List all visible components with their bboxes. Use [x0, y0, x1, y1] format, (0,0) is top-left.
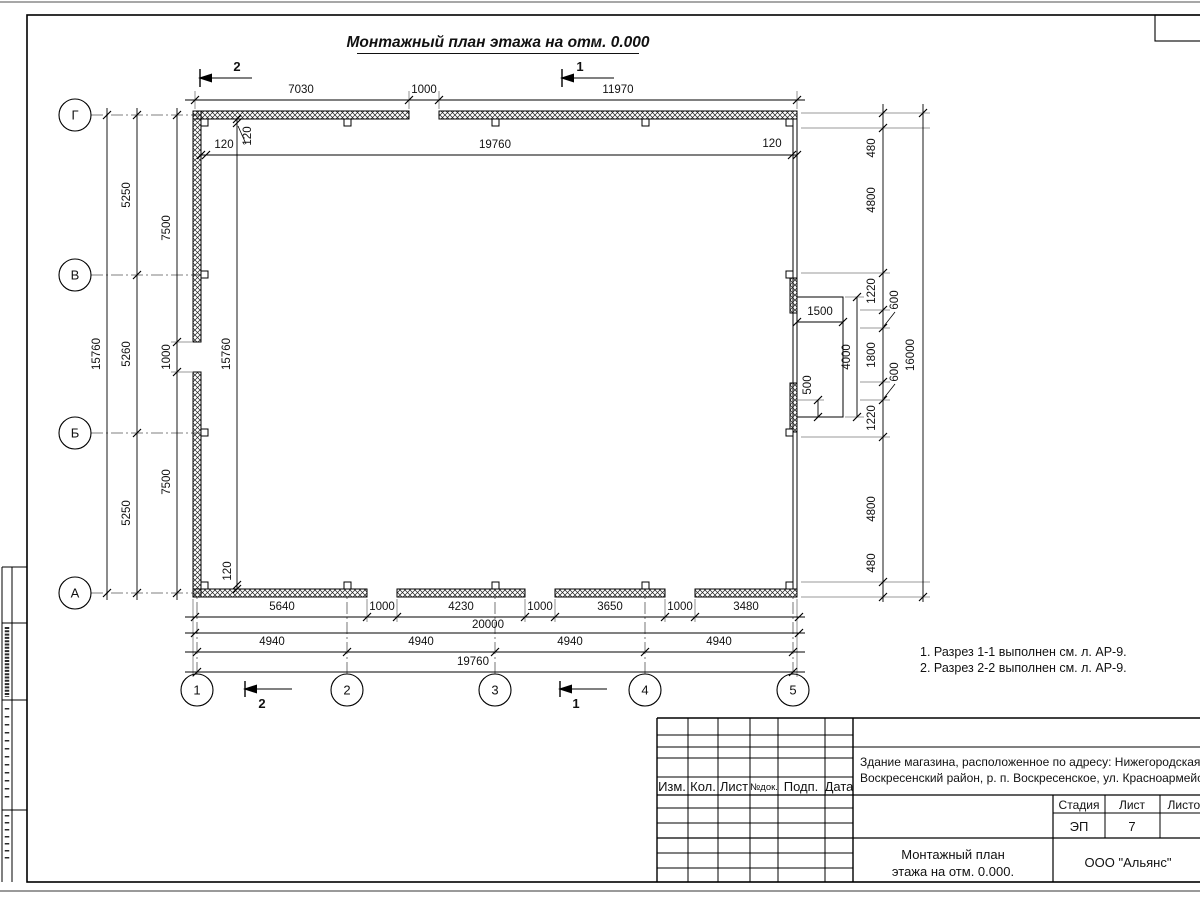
wall-bottom-segment-3 — [555, 589, 665, 597]
dim-label: 120 — [222, 561, 234, 580]
notes: 1. Разрез 1-1 выполнен см. л. АР-9. 2. Р… — [920, 645, 1127, 675]
dim-label: 600 — [889, 290, 901, 309]
dim-label: 1220 — [866, 278, 878, 304]
dim-label: 16000 — [905, 339, 917, 371]
dim-label: 4230 — [448, 601, 474, 613]
titleblock-col-ndoc: №док. — [750, 782, 778, 793]
dim-label: 7500 — [161, 215, 173, 241]
dim-label: 1800 — [866, 342, 878, 368]
stage-label: Стадия — [1059, 798, 1100, 812]
wall-bottom-segment-4 — [695, 589, 797, 597]
dim-label: 5640 — [269, 601, 295, 613]
dim-label: 480 — [866, 138, 878, 157]
dim-chains-right: 480 4800 1220 600 1800 600 1220 4800 480… — [866, 104, 927, 602]
drawing-title-group: Монтажный план этажа на отм. 0.000 — [346, 34, 649, 54]
wall-right-hatched-lower — [790, 383, 797, 432]
wall-bottom-segment-2 — [397, 589, 525, 597]
dim-label: 11970 — [602, 84, 633, 96]
wall-right-thin — [793, 119, 797, 589]
dim-label: 5260 — [121, 341, 133, 367]
wall-top-right-segment — [439, 111, 797, 119]
note-line: 1. Разрез 1-1 выполнен см. л. АР-9. — [920, 645, 1127, 659]
sheets-label: Листов — [1168, 798, 1200, 812]
axis-label: Г — [71, 108, 78, 123]
dim-label: 1500 — [807, 306, 833, 318]
dim-label: 1220 — [866, 405, 878, 431]
dim-label: 3650 — [597, 601, 623, 613]
wall-bottom-segment-1 — [193, 589, 367, 597]
dim-label: 4940 — [706, 636, 732, 648]
company-name: ООО "Альянс" — [1085, 855, 1172, 870]
dim-label: 1000 — [527, 601, 553, 613]
dim-label: 19760 — [457, 656, 489, 668]
axis-label: В — [71, 268, 80, 283]
floor-plan-drawing: Монтажный план этажа на отм. 0.000 — [0, 0, 1200, 900]
titleblock-col-data: Дата — [825, 779, 855, 794]
section-mark-label: 2 — [233, 59, 240, 74]
dim-label: 500 — [802, 375, 814, 394]
dim-label: 1000 — [411, 84, 437, 96]
column-markers — [201, 119, 793, 589]
sheet-label: Лист — [1119, 798, 1146, 812]
dim-label: 600 — [889, 362, 901, 381]
project-name-line2: Воскресенский район, р. п. Воскресенское… — [860, 771, 1200, 785]
dim-label: 15760 — [91, 338, 103, 370]
dim-label: 5250 — [121, 500, 133, 526]
doc-title-line1: Монтажный план — [901, 847, 1005, 862]
dim-label: 19760 — [479, 139, 511, 151]
dim-label: 4800 — [866, 187, 878, 213]
section-mark-label: 2 — [258, 696, 265, 711]
wall-top-left-segment — [193, 111, 409, 119]
axis-label: Б — [71, 426, 80, 441]
section-mark-label: 1 — [576, 59, 583, 74]
dim-label: 480 — [866, 553, 878, 572]
drawing-sheet: Монтажный план этажа на отм. 0.000 — [0, 0, 1200, 900]
dim-label: 15760 — [221, 338, 233, 370]
section-marks: 2 1 2 1 — [198, 59, 614, 711]
dim-label: 3480 — [733, 601, 759, 613]
format-box — [1155, 15, 1200, 41]
wall-left-lower-segment — [193, 372, 201, 597]
title-block: Изм. Кол. Лист №док. Подп. Дата Здание м… — [657, 718, 1200, 882]
note-line: 2. Разрез 2-2 выполнен см. л. АР-9. — [920, 661, 1127, 675]
dim-chains-left: 15760 5250 5260 5250 7500 1000 7500 — [91, 108, 181, 600]
dim-label: 120 — [242, 126, 254, 145]
dim-label: 4940 — [557, 636, 583, 648]
page-title: Монтажный план этажа на отм. 0.000 — [346, 34, 649, 51]
dim-label: 4940 — [408, 636, 434, 648]
axis-label: 1 — [193, 683, 200, 698]
wall-right-hatched-upper — [790, 278, 797, 313]
walls — [193, 111, 843, 597]
axis-label: 4 — [641, 683, 648, 698]
dim-label: 120 — [762, 138, 781, 150]
left-margin-stamp — [2, 567, 27, 882]
dim-label: 1000 — [161, 344, 173, 370]
section-mark-label: 1 — [572, 696, 579, 711]
titleblock-col-podp: Подп. — [784, 779, 819, 794]
axis-label: 3 — [491, 683, 498, 698]
dim-label: 4000 — [841, 344, 853, 370]
project-name-line1: Здание магазина, расположенное по адресу… — [860, 755, 1200, 769]
axis-label: 5 — [789, 683, 796, 698]
dim-chain-left-inner: 120 15760 120 — [221, 115, 254, 593]
dim-label: 4940 — [259, 636, 285, 648]
doc-title-line2: этажа на отм. 0.000. — [892, 864, 1014, 879]
stage-value: ЭП — [1070, 819, 1089, 834]
titleblock-col-izm: Изм. — [658, 779, 686, 794]
dim-label: 7030 — [288, 84, 314, 96]
titleblock-col-kol: Кол. — [690, 779, 716, 794]
dim-label: 1000 — [369, 601, 395, 613]
wall-left-upper-segment — [193, 111, 201, 342]
dim-label: 4800 — [866, 496, 878, 522]
dim-label: 7500 — [161, 469, 173, 495]
dim-label: 20000 — [472, 619, 504, 631]
dim-chain-top-inner: 120 19760 120 — [197, 138, 801, 159]
axis-label: 2 — [343, 683, 350, 698]
dim-label: 1000 — [667, 601, 693, 613]
dim-label: 120 — [214, 139, 233, 151]
sheet-value: 7 — [1128, 819, 1135, 834]
titleblock-col-list: Лист — [720, 779, 748, 794]
dim-chain-top: 7030 1000 11970 — [185, 84, 805, 104]
dim-label: 5250 — [121, 182, 133, 208]
axis-label: А — [71, 586, 80, 601]
